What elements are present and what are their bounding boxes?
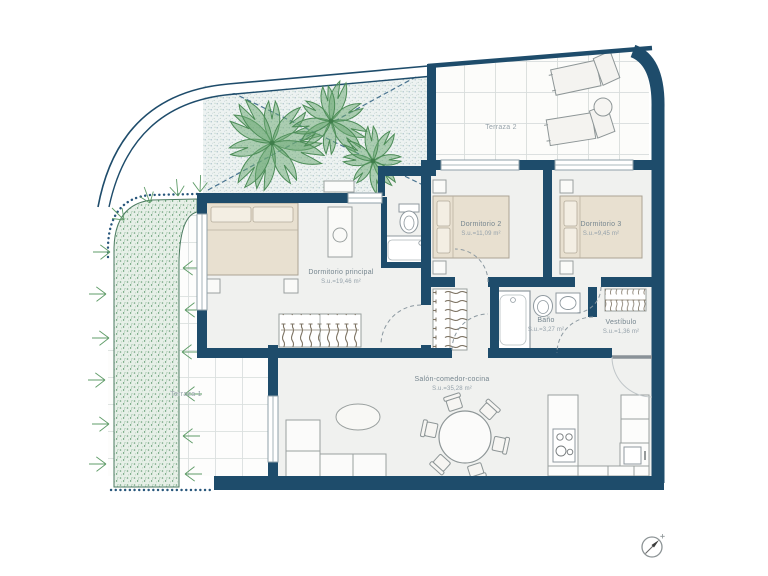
coffee-table-icon [336,404,380,430]
north-compass-icon [642,534,665,557]
nightstand-icon [206,279,220,293]
nightstand-icon [433,180,446,193]
dining-table-icon [439,411,491,463]
window-icon [197,214,207,310]
floor-plan-page: Terraza 2 Dormitorio 2 S.u.=11,09 m² Dor… [0,0,768,576]
window-icon [268,396,278,462]
window-icon [441,160,519,170]
side-table-icon [594,98,612,116]
nightstand-icon [560,261,573,274]
nightstand-icon [560,180,573,193]
nightstand-icon [433,261,446,274]
stool-icon [333,228,347,242]
nightstand-icon [284,279,298,293]
window-icon [555,160,633,170]
window-sill [324,181,354,192]
terraza-2-floor [436,51,649,160]
cooktop-icon [553,429,575,462]
shower-icon [496,291,530,349]
window-icon [348,193,382,203]
floor-plan-drawing [0,0,768,576]
